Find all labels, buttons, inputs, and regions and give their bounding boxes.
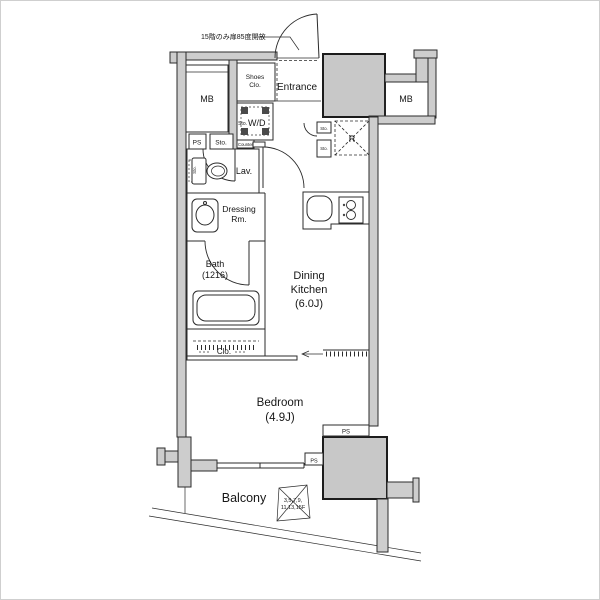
wd-pad-3 xyxy=(241,128,248,135)
wall-arm-right-notch xyxy=(413,478,419,502)
ps-top-label: PS xyxy=(193,140,202,147)
wd-pad-4 xyxy=(262,128,269,135)
basin-faucet xyxy=(204,202,207,205)
floorplan-drawing: 15階のみ扉85度開放 MB MB Shoes Clo. Entrance St… xyxy=(1,1,600,600)
dk-label-3: (6.0J) xyxy=(295,298,323,310)
door-jamb xyxy=(253,142,265,147)
wd-pad-2 xyxy=(262,107,269,114)
bath-label-1: Bath xyxy=(206,259,225,269)
dressing-label-1: Dressing xyxy=(222,204,256,214)
shoes-closet-label-1: Shoes xyxy=(246,74,265,81)
fridge-label: R xyxy=(349,134,356,144)
entrance-door-leaf xyxy=(317,14,319,58)
basin-bowl xyxy=(196,205,214,225)
wall-bedroom-bottom-left xyxy=(191,460,217,471)
toilet-bowl xyxy=(207,163,227,179)
hatch-label-2: 11,13,15F xyxy=(281,505,306,511)
dk-label-1: Dining xyxy=(293,270,324,282)
sto-r1-label: Sto. xyxy=(320,126,327,131)
wd-sto-label: Sto. xyxy=(238,121,247,127)
lav-label: Lav. xyxy=(236,166,252,176)
counter-label: Counter xyxy=(238,142,254,147)
stove-knob-1 xyxy=(343,204,345,206)
wall-balcony-corner-step xyxy=(157,448,165,465)
wall-left xyxy=(177,52,186,437)
wd-pad-1 xyxy=(241,107,248,114)
dk-door-arc xyxy=(263,147,304,188)
partition-dk-bedroom xyxy=(187,356,297,360)
ps-right-label: PS xyxy=(342,430,350,436)
floorplan-image: 15階のみ扉85度開放 MB MB Shoes Clo. Entrance St… xyxy=(0,0,600,600)
bathtub-inner xyxy=(197,295,255,321)
sto-lav-label: Sto. xyxy=(192,166,197,173)
balcony-label: Balcony xyxy=(222,491,267,505)
entrance-door-arc xyxy=(275,14,317,58)
bath-label-2: (1216) xyxy=(202,270,228,280)
ps-small-label: PS xyxy=(310,459,318,465)
closet-label: Clo. xyxy=(217,347,231,356)
wall-arm-down xyxy=(377,499,388,552)
sto-r2-label: Sto. xyxy=(320,146,327,151)
wall-mb-right-side xyxy=(428,58,436,118)
wall-mb-right-bottom xyxy=(369,116,435,124)
wd-label: W/D xyxy=(248,118,266,128)
mb-left-label: MB xyxy=(200,94,214,104)
wall-balcony-corner-vertical xyxy=(178,437,191,487)
wall-right xyxy=(369,117,378,426)
bedroom-label-2: (4.9J) xyxy=(265,412,295,424)
shoes-closet-label-2: Clo. xyxy=(249,82,261,89)
annotation-top-label: 15階のみ扉85度開放 xyxy=(201,32,266,41)
kitchen-sink xyxy=(307,196,332,221)
mb-right-label: MB xyxy=(399,94,413,104)
dressing-room-right xyxy=(249,193,265,241)
wall-top xyxy=(177,52,277,60)
dk-label-2: Kitchen xyxy=(291,284,328,296)
shaft-bottom xyxy=(323,437,387,499)
sto-door-arc xyxy=(304,123,317,136)
stove-knob-2 xyxy=(343,214,345,216)
wall-mb-right-cap xyxy=(414,50,437,58)
sto-top-label: Sto. xyxy=(215,140,227,147)
shaft-top xyxy=(323,54,385,117)
wall-arm-right xyxy=(387,482,415,498)
bedroom-label-1: Bedroom xyxy=(257,397,304,409)
hatch-label-1: 3,5,7,9, xyxy=(284,498,303,504)
entrance-label: Entrance xyxy=(277,82,317,93)
wall-mb-right-top xyxy=(385,74,416,82)
dressing-label-2: Rm. xyxy=(231,214,247,224)
